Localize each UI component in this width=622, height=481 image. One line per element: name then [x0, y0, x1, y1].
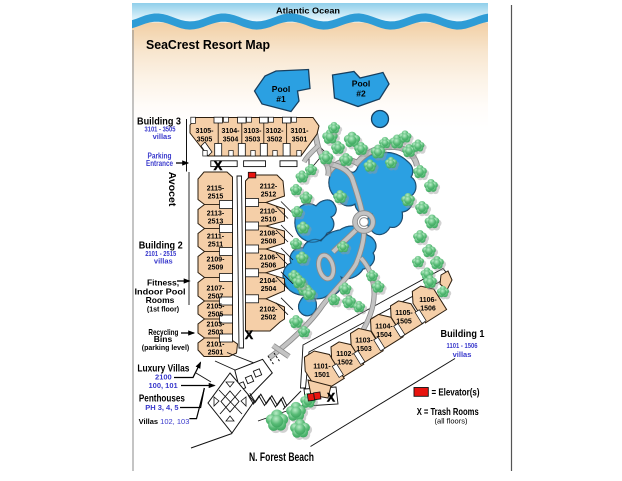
svg-text:2512: 2512: [261, 192, 277, 199]
svg-text:Entrance: Entrance: [146, 159, 173, 168]
svg-text:2106-: 2106-: [260, 255, 279, 262]
svg-text:2506: 2506: [261, 263, 277, 270]
svg-text:1101-: 1101-: [313, 364, 331, 371]
svg-text:2511: 2511: [208, 242, 223, 249]
svg-text:1506: 1506: [420, 306, 436, 313]
svg-text:2103-: 2103-: [207, 322, 226, 329]
svg-text:3503: 3503: [245, 137, 261, 144]
svg-text:X: X: [245, 328, 253, 342]
svg-text:2102-: 2102-: [260, 307, 279, 314]
svg-text:3502: 3502: [267, 137, 283, 144]
svg-text:2104-: 2104-: [260, 278, 279, 285]
svg-text:#1: #1: [276, 94, 286, 104]
svg-text:2510: 2510: [261, 217, 277, 224]
svg-text:3501: 3501: [292, 137, 308, 144]
svg-text:1101 - 1506: 1101 - 1506: [447, 341, 478, 350]
svg-text:1106-: 1106-: [419, 297, 437, 304]
svg-text:3104-: 3104-: [222, 128, 241, 135]
svg-text:1505: 1505: [396, 319, 412, 326]
svg-text:2115-: 2115-: [207, 186, 225, 193]
svg-text:1105-: 1105-: [395, 310, 413, 317]
svg-text:villas: villas: [154, 257, 173, 266]
svg-text:3101-: 3101-: [291, 128, 310, 135]
svg-text:Villas 102, 103: Villas 102, 103: [139, 417, 190, 426]
svg-text:2509: 2509: [208, 265, 224, 272]
svg-text:#2: #2: [356, 89, 366, 99]
svg-text:2105-: 2105-: [207, 304, 226, 311]
svg-text:2108-: 2108-: [260, 231, 279, 238]
svg-text:3102-: 3102-: [266, 128, 285, 135]
svg-text:SeaCrest Resort Map: SeaCrest Resort Map: [146, 38, 270, 52]
svg-text:X: X: [214, 158, 223, 173]
svg-text:2107-: 2107-: [207, 286, 226, 293]
svg-text:PH 3, 4, 5: PH 3, 4, 5: [145, 403, 178, 412]
svg-text:2515: 2515: [208, 194, 224, 201]
svg-text:2111-: 2111-: [207, 234, 225, 241]
svg-text:3504: 3504: [223, 137, 239, 144]
svg-text:2110-: 2110-: [260, 209, 278, 216]
svg-text:2507: 2507: [208, 294, 224, 301]
svg-text:(all floors): (all floors): [435, 417, 468, 426]
svg-text:Rooms: Rooms: [146, 295, 175, 305]
svg-text:Building 1: Building 1: [441, 328, 485, 340]
svg-text:1503: 1503: [356, 346, 372, 353]
svg-text:3103-: 3103-: [244, 128, 263, 135]
svg-text:2101-: 2101-: [207, 342, 226, 349]
svg-text:1103-: 1103-: [355, 338, 373, 345]
svg-text:100, 101: 100, 101: [148, 381, 177, 390]
svg-text:(parking level): (parking level): [142, 345, 189, 352]
svg-text:1501: 1501: [314, 372, 330, 379]
svg-text:2112-: 2112-: [260, 184, 278, 191]
svg-text:1502: 1502: [337, 360, 353, 367]
svg-text:Atlantic Ocean: Atlantic Ocean: [276, 6, 340, 16]
svg-text:3105-: 3105-: [196, 128, 215, 135]
svg-text:1104-: 1104-: [375, 324, 393, 331]
svg-text:2113-: 2113-: [207, 211, 225, 218]
svg-text:(1st floor): (1st floor): [147, 307, 179, 314]
svg-text:1102-: 1102-: [336, 351, 354, 358]
svg-text:Bins: Bins: [154, 334, 173, 344]
svg-text:= Elevator(s): = Elevator(s): [432, 388, 480, 399]
svg-text:2502: 2502: [261, 315, 277, 322]
svg-text:1504: 1504: [376, 332, 392, 339]
svg-text:2501: 2501: [208, 350, 224, 357]
svg-text:2503: 2503: [208, 330, 224, 337]
svg-text:2513: 2513: [208, 219, 224, 226]
svg-text:3505: 3505: [197, 137, 213, 144]
svg-text:Pool: Pool: [272, 84, 290, 94]
svg-text:Avocet: Avocet: [166, 172, 178, 207]
svg-text:X: X: [327, 391, 335, 405]
svg-text:2109-: 2109-: [207, 257, 226, 264]
svg-text:2504: 2504: [261, 286, 277, 293]
svg-text:N. Forest Beach: N. Forest Beach: [249, 452, 314, 464]
svg-text:Pool: Pool: [352, 79, 370, 89]
svg-text:2508: 2508: [261, 239, 277, 246]
svg-text:villas: villas: [453, 350, 472, 359]
svg-text:2505: 2505: [208, 312, 224, 319]
svg-text:villas: villas: [153, 132, 172, 141]
